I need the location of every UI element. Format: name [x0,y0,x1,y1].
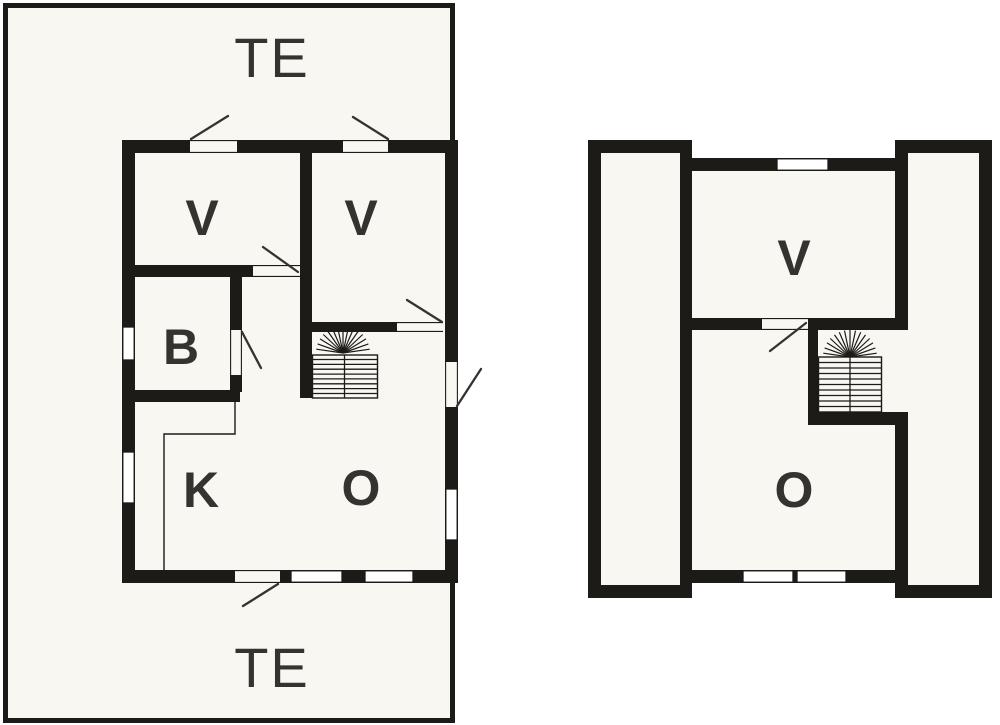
room-label-bathroom: B [163,319,199,375]
room-label-bedroom-right: V [344,190,378,246]
upper-room-label-landing: O [775,462,814,518]
room-label-living: O [342,460,381,516]
upper-floor-plan: V O [588,140,992,598]
room-label-kitchen: K [183,462,219,518]
floor-plan-page: TE TE V V B K O [0,0,1000,725]
ground-floor-plan: TE TE V V B K O [3,3,481,723]
terrace-label-top: TE [234,26,310,89]
terrace-label-bottom: TE [234,636,310,699]
upper-floor-fill [601,153,979,585]
floor-plan-canvas: TE TE V V B K O [0,0,1000,725]
room-label-bedroom-left: V [185,190,219,246]
upper-room-label-bedroom: V [777,230,811,286]
